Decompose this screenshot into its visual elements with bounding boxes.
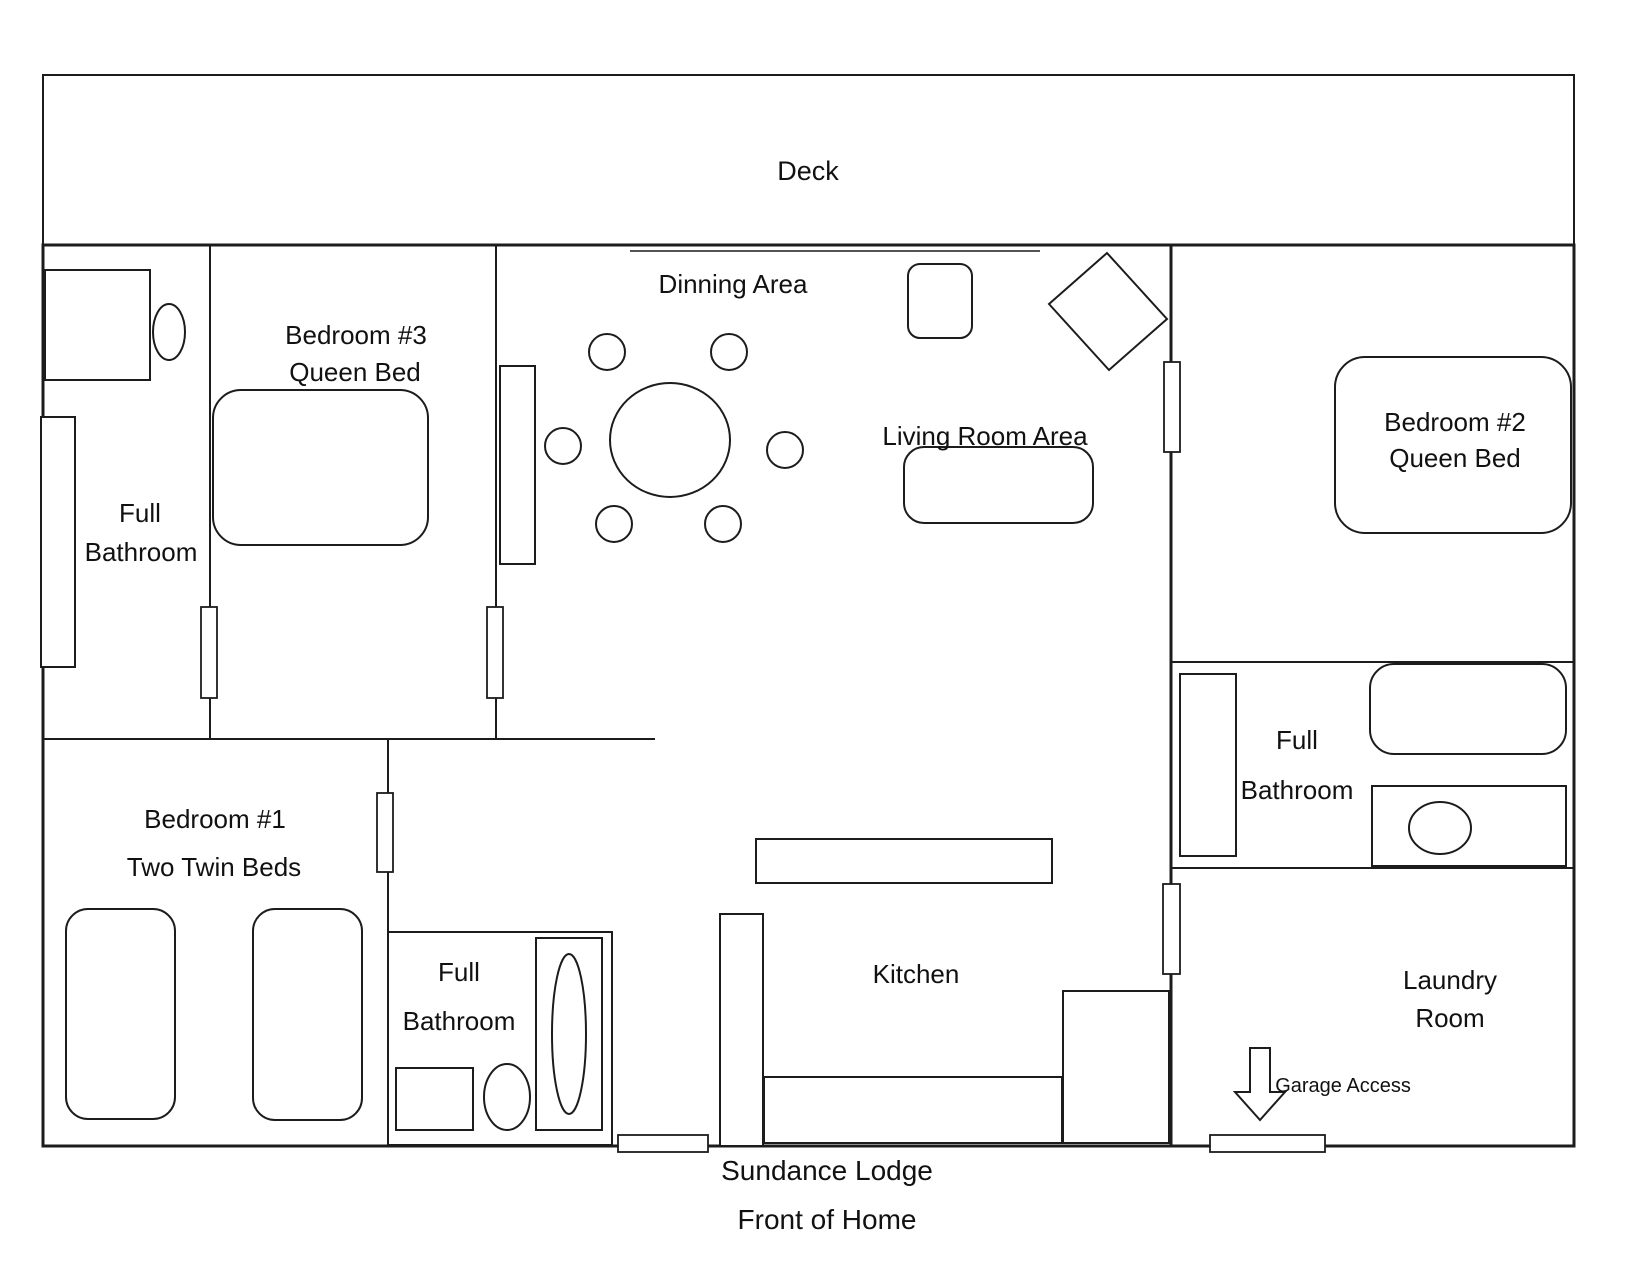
- bath-right-label-line2: Bathroom: [1241, 775, 1354, 805]
- armchair-icon: [908, 264, 972, 338]
- living-room-furniture: [904, 253, 1167, 523]
- footer-orientation-label: Front of Home: [738, 1204, 917, 1235]
- floor-plan-page: Deck Dinning Area Living Room Area Kitch…: [0, 0, 1650, 1275]
- kitchen-counter-right-icon: [1063, 991, 1169, 1143]
- door-marker-bedroom1: [377, 793, 393, 872]
- deck-label: Deck: [777, 156, 839, 186]
- toilet-icon: [484, 1064, 530, 1130]
- door-marker-bedroom3-right: [487, 607, 503, 698]
- kitchen-counters: [720, 839, 1169, 1146]
- dining-furniture: [500, 334, 803, 564]
- footer-title-label: Sundance Lodge: [721, 1155, 933, 1186]
- bathtub-basin-icon: [552, 954, 586, 1114]
- bathroom-left-fixtures: [41, 270, 185, 667]
- door-marker-bedroom2: [1164, 362, 1180, 452]
- sink-counter-icon: [396, 1068, 473, 1130]
- dining-chair-icon: [711, 334, 747, 370]
- bath-left-label-line2: Bathroom: [85, 537, 198, 567]
- kitchen-counter-top-icon: [756, 839, 1052, 883]
- sink-icon: [1409, 802, 1471, 854]
- vanity-icon: [45, 270, 150, 380]
- dining-chair-icon: [705, 506, 741, 542]
- toilet-icon: [153, 304, 185, 360]
- bathroom-right-fixtures: [1180, 664, 1566, 866]
- dining-chair-icon: [589, 334, 625, 370]
- twin-bed-icon: [253, 909, 362, 1120]
- bedroom1-label-line2: Two Twin Beds: [127, 852, 301, 882]
- floor-plan-canvas: Deck Dinning Area Living Room Area Kitch…: [0, 0, 1650, 1275]
- bath-middle-label-line2: Bathroom: [403, 1006, 516, 1036]
- bathtub-icon: [41, 417, 75, 667]
- living-room-label: Living Room Area: [882, 421, 1088, 451]
- dining-table-icon: [610, 383, 730, 497]
- bedroom1-label-line1: Bedroom #1: [144, 804, 286, 834]
- bath-left-label-line1: Full: [119, 498, 161, 528]
- dining-chair-icon: [545, 428, 581, 464]
- bedroom3-label-line1: Bedroom #3: [285, 320, 427, 350]
- bedroom2-label-line1: Bedroom #2: [1384, 407, 1526, 437]
- bathtub-icon: [1370, 664, 1566, 754]
- dining-chair-icon: [596, 506, 632, 542]
- front-door-marker: [618, 1135, 708, 1152]
- bedroom3-label-line2: Queen Bed: [289, 357, 421, 387]
- door-marker-laundry: [1163, 884, 1180, 974]
- corner-table-icon: [1049, 253, 1167, 370]
- door-marker-bedroom3-left: [201, 607, 217, 698]
- laundry-door-marker: [1210, 1135, 1325, 1152]
- shower-icon: [1180, 674, 1236, 856]
- garage-access-label: Garage Access: [1275, 1075, 1411, 1097]
- laundry-label-line1: Laundry: [1403, 965, 1497, 995]
- dining-area-label: Dinning Area: [659, 269, 808, 299]
- bedroom1-furniture: [66, 909, 362, 1120]
- kitchen-counter-left-icon: [720, 914, 763, 1146]
- queen-bed-3-icon: [213, 390, 428, 545]
- bath-middle-label-line1: Full: [438, 957, 480, 987]
- kitchen-label: Kitchen: [873, 959, 960, 989]
- kitchen-counter-bottom-icon: [764, 1077, 1062, 1143]
- twin-bed-icon: [66, 909, 175, 1119]
- dining-cabinet-icon: [500, 366, 535, 564]
- bath-right-label-line1: Full: [1276, 725, 1318, 755]
- sofa-icon: [904, 447, 1093, 523]
- laundry-label-line2: Room: [1415, 1003, 1484, 1033]
- dining-chair-icon: [767, 432, 803, 468]
- bedroom2-label-line2: Queen Bed: [1389, 443, 1521, 473]
